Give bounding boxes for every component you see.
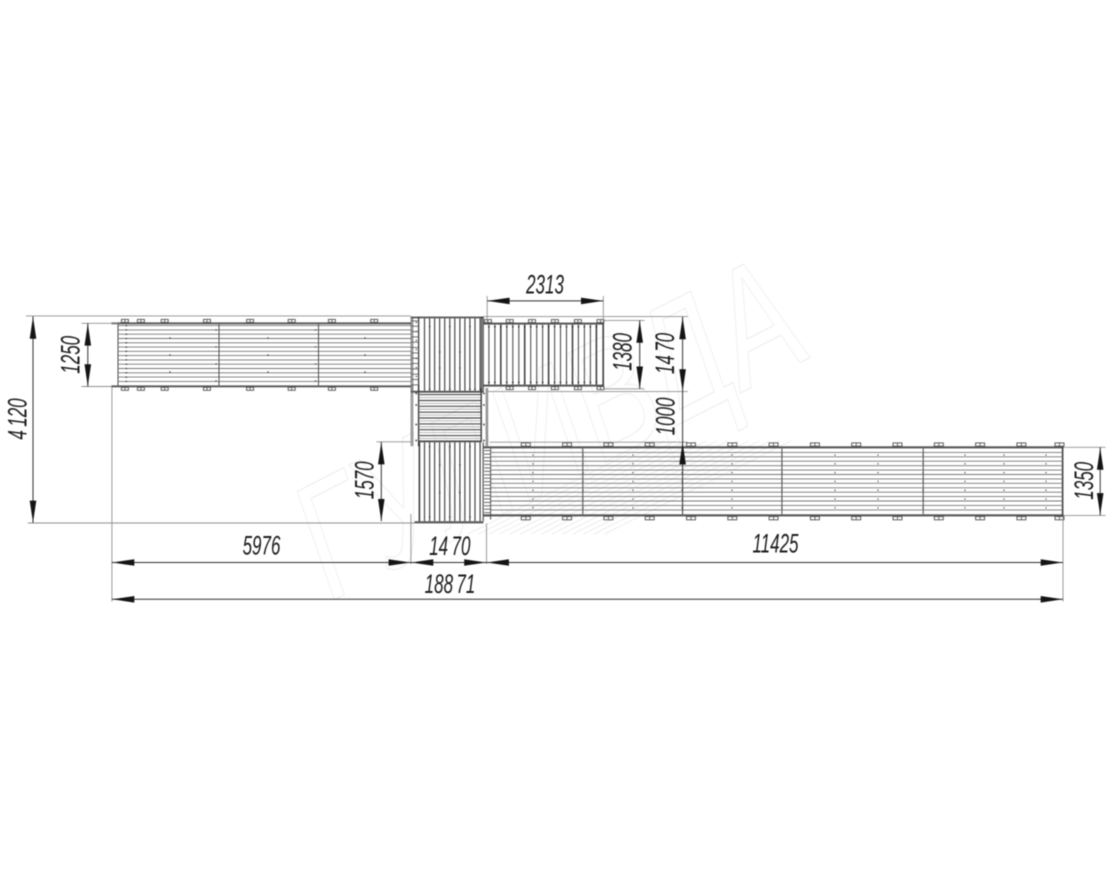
svg-text:5976: 5976 bbox=[243, 531, 281, 561]
svg-text:1380: 1380 bbox=[608, 333, 638, 371]
svg-text:4 120: 4 120 bbox=[3, 398, 33, 440]
svg-text:1250: 1250 bbox=[56, 336, 86, 374]
svg-text:1570: 1570 bbox=[349, 461, 379, 499]
svg-text:2313: 2313 bbox=[525, 270, 564, 300]
svg-text:1350: 1350 bbox=[1069, 462, 1099, 500]
svg-text:14 70: 14 70 bbox=[650, 333, 680, 375]
svg-text:1000: 1000 bbox=[650, 397, 680, 435]
svg-text:14 70: 14 70 bbox=[429, 531, 471, 561]
svg-text:11425: 11425 bbox=[752, 529, 798, 559]
svg-text:188 71: 188 71 bbox=[425, 569, 476, 599]
